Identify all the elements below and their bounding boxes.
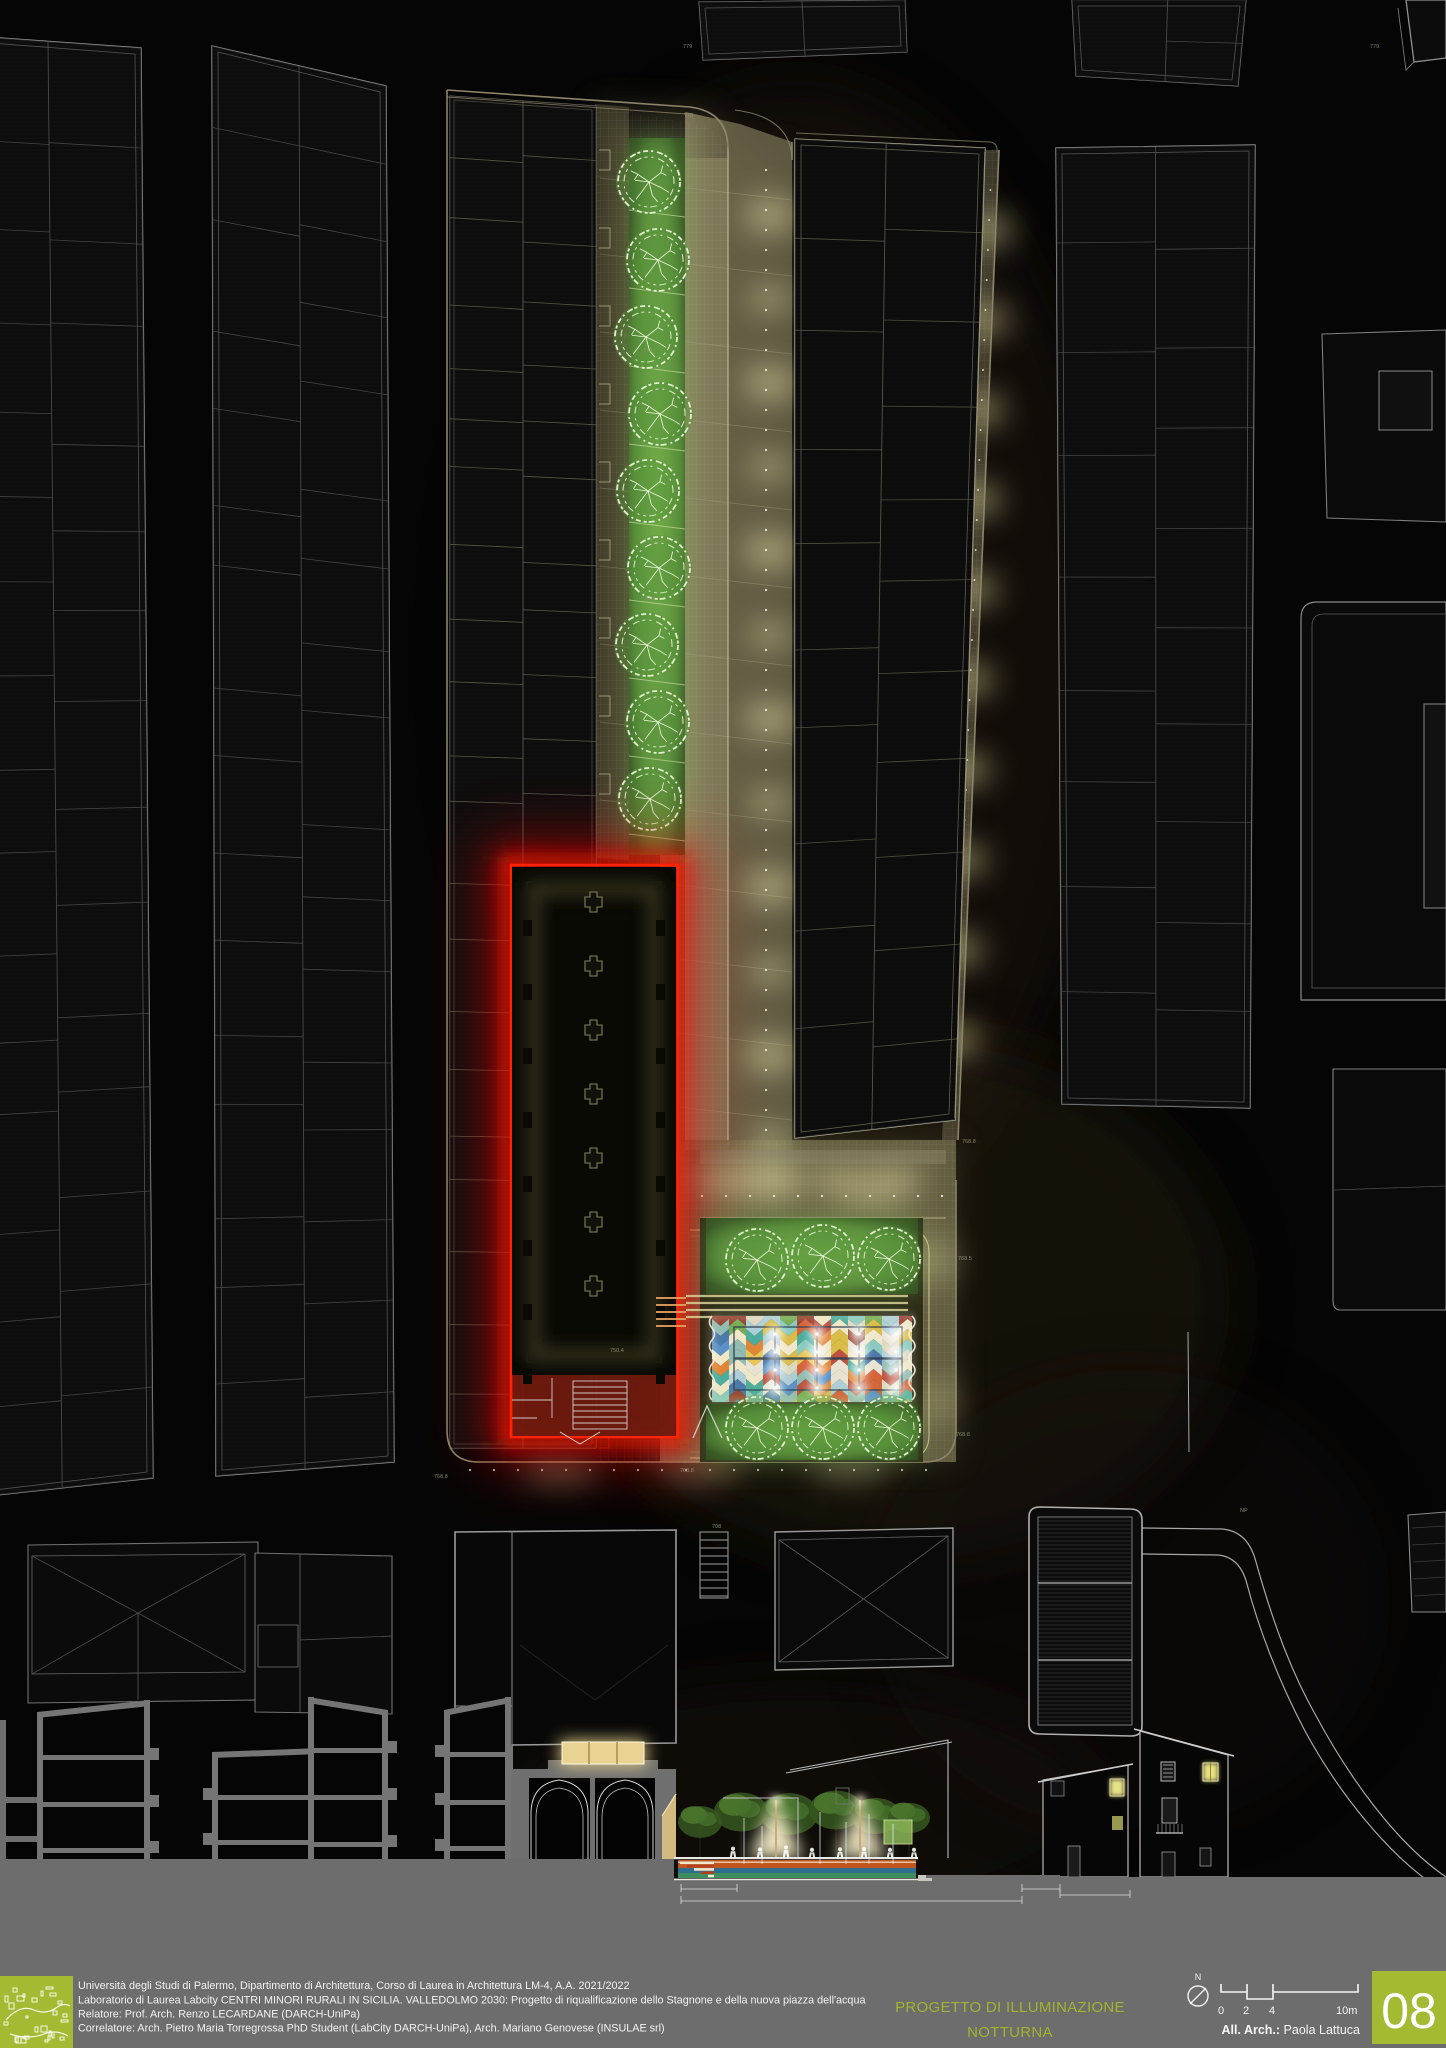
svg-text:750.4: 750.4 (610, 1348, 624, 1354)
svg-text:Laboratorio di Laurea Labcity: Laboratorio di Laurea Labcity CENTRI MIN… (78, 1995, 865, 2007)
svg-text:0: 0 (1218, 2005, 1224, 2017)
svg-text:708: 708 (712, 1524, 721, 1530)
svg-text:2: 2 (1243, 2005, 1249, 2017)
svg-text:775: 775 (645, 596, 654, 602)
svg-text:Relatore: Prof. Arch. Renzo LE: Relatore: Prof. Arch. Renzo LECARDANE (D… (78, 2009, 360, 2021)
svg-text:4: 4 (1269, 2005, 1275, 2017)
svg-text:768.8: 768.8 (680, 1468, 694, 1474)
svg-text:768.8: 768.8 (434, 1474, 448, 1480)
svg-text:Università degli Studi di Pale: Università degli Studi di Palermo, Dipar… (78, 1980, 630, 1992)
svg-text:NP: NP (1240, 1508, 1248, 1514)
svg-text:779: 779 (1370, 44, 1379, 50)
svg-text:10m: 10m (1336, 2005, 1357, 2017)
svg-text:Correlatore: Arch. Pietro Mari: Correlatore: Arch. Pietro Maria Torregro… (78, 2023, 665, 2035)
svg-text:768.5: 768.5 (958, 1256, 972, 1262)
svg-text:08: 08 (1381, 1983, 1437, 2039)
svg-text:N: N (1195, 1972, 1202, 1982)
svg-text:776: 776 (643, 348, 652, 354)
svg-text:768.8: 768.8 (962, 1139, 976, 1145)
svg-text:All. Arch.: Paola Lattuca: All. Arch.: Paola Lattuca (1222, 2023, 1361, 2037)
svg-text:PROGETTO DI ILLUMINAZIONE: PROGETTO DI ILLUMINAZIONE (895, 1999, 1125, 2016)
svg-text:779: 779 (683, 44, 692, 50)
svg-text:778: 778 (684, 113, 693, 119)
svg-text:NOTTURNA: NOTTURNA (967, 2024, 1053, 2041)
svg-text:768.8: 768.8 (956, 1432, 970, 1438)
